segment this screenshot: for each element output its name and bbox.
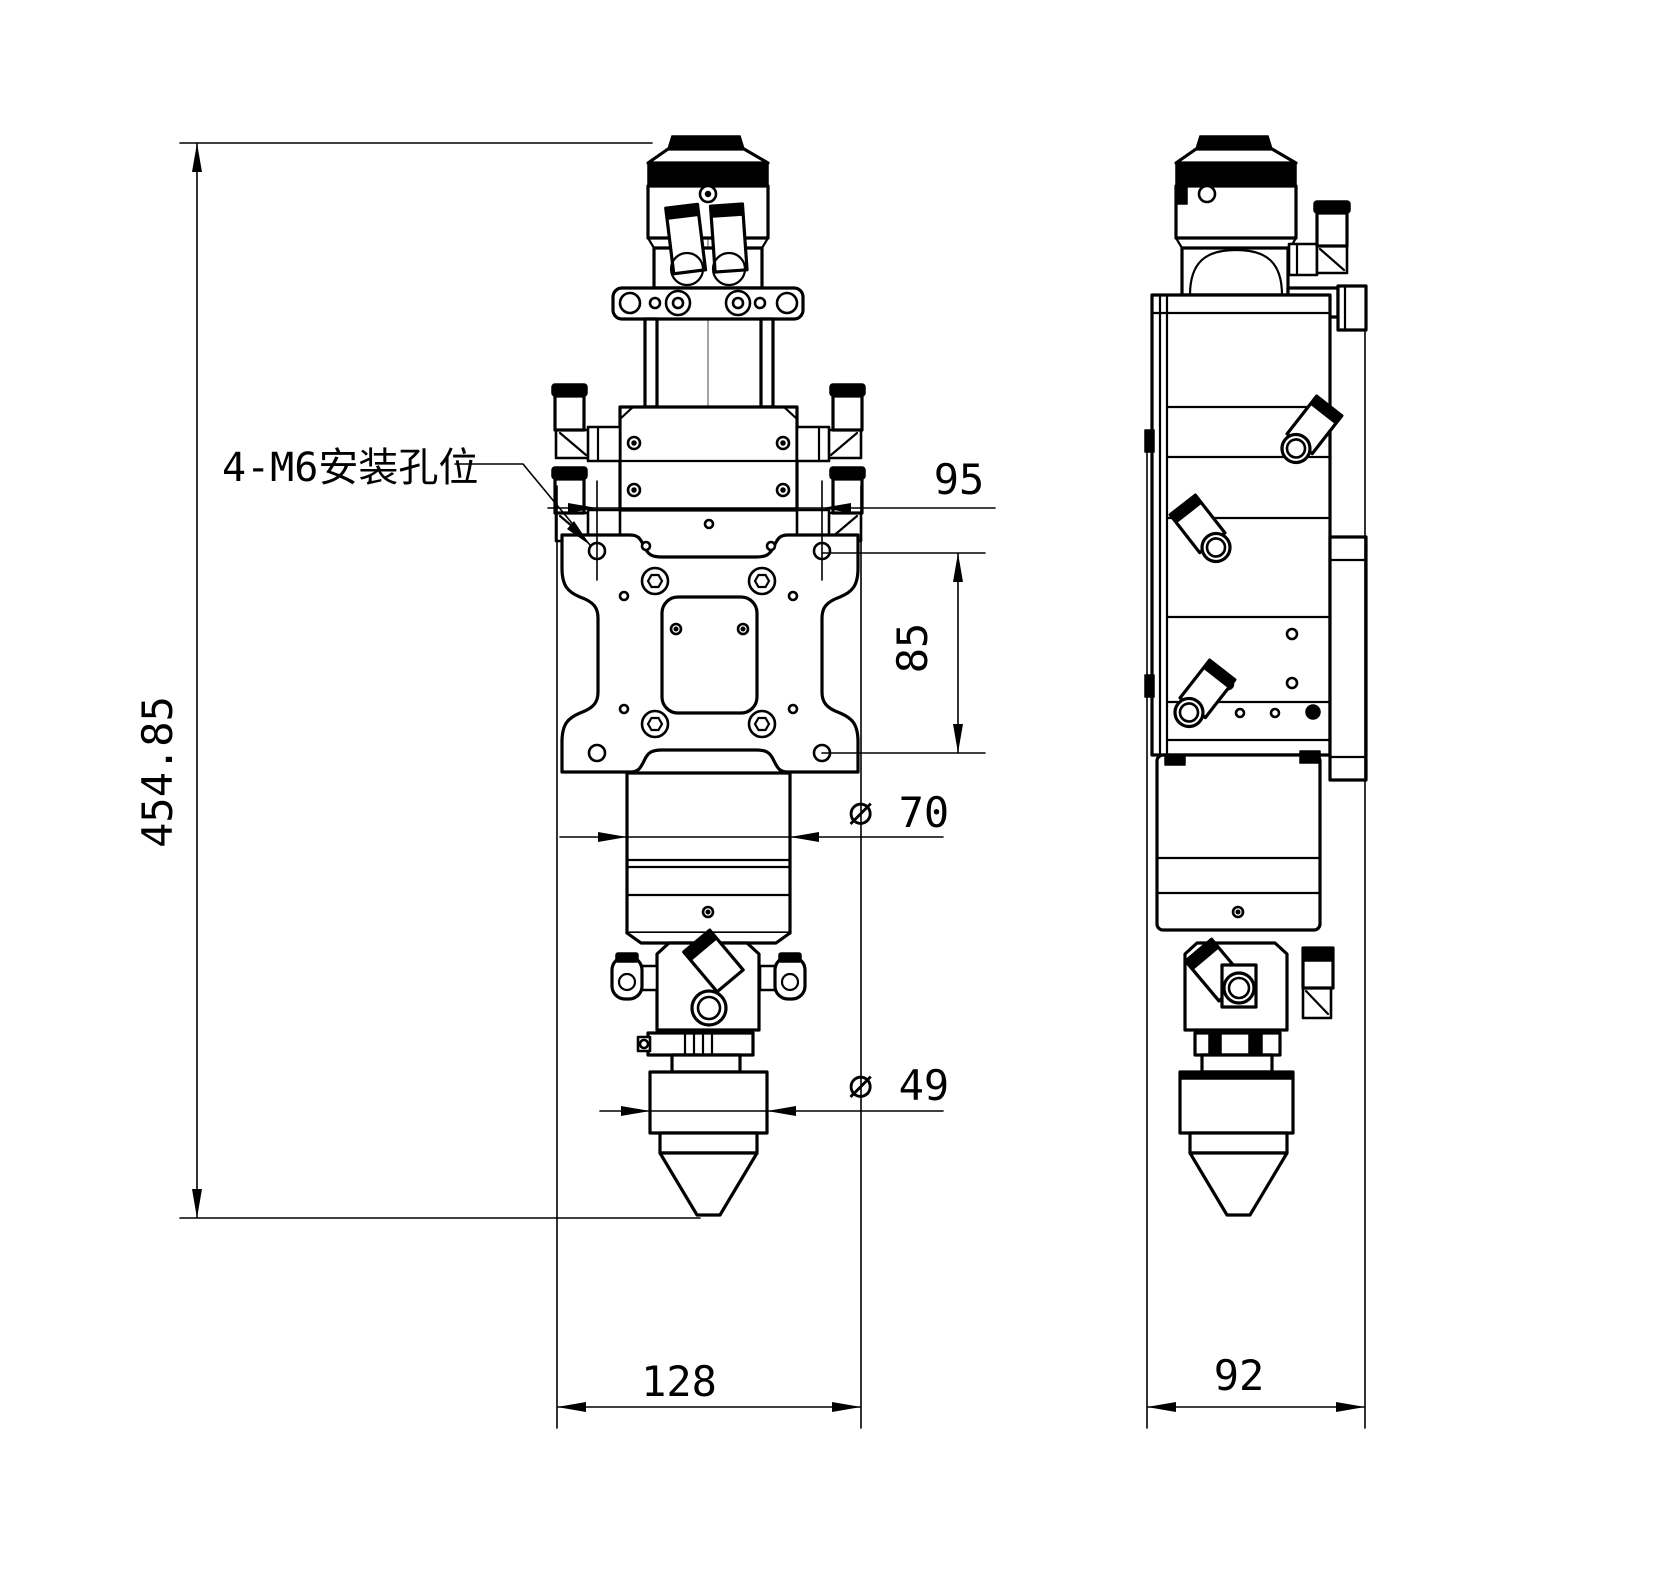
dim-text-95: 95 [934,455,985,504]
side-port-left [612,953,657,999]
side-port-right-side [1303,948,1333,1018]
focus-barrel-front [627,773,790,943]
nozzle-holder-side [1185,939,1333,1030]
front-view [552,136,865,1215]
dim-text-dia49: ∅ 49 [848,1061,949,1110]
nozzle-side [1180,1072,1293,1215]
dim-text-92: 92 [1214,1351,1265,1400]
fiber-tube-right [711,204,748,272]
window-plate [662,597,757,713]
mounting-plate-front [562,520,858,772]
callout-text: 4-M6安装孔位 [222,445,478,491]
pneumatic-fitting-upper-right [797,384,865,461]
mounting-holes-callout: 4-M6安装孔位 [222,445,590,545]
pneumatic-fitting-lower-left [552,467,620,544]
qbh-connector-side [1176,136,1296,295]
qbh-connector-front [648,136,768,288]
pneumatic-fitting-lower-right [797,467,865,544]
dim-text-128: 128 [641,1357,717,1406]
main-body-side [1145,295,1342,755]
clamp-plate-front [613,288,803,319]
nozzle-holder-front [612,930,805,1030]
side-view [1145,136,1366,1215]
side-port-right [760,953,805,999]
collimator-module-front [620,407,797,510]
pneumatic-fitting-top-side [1289,201,1350,275]
drawing-canvas: 454.85 95 85 ∅ 70 ∅ 49 [0,0,1679,1580]
nozzle-front [650,1072,767,1215]
sensor-ring-side [1195,1033,1280,1072]
lower-box-side [1157,751,1320,930]
pneumatic-fitting-upper-left [552,384,620,461]
dim-text-85: 85 [888,623,937,674]
dim-text-overall-height: 454.85 [133,696,182,848]
nozzle-cone [660,1153,757,1215]
sensor-ring-front [638,1033,753,1072]
laser-head-technical-drawing: 454.85 95 85 ∅ 70 ∅ 49 [0,0,1679,1580]
support-columns-front [645,319,773,407]
dim-text-dia70: ∅ 70 [848,788,949,837]
side-flange-plate [1330,537,1366,780]
